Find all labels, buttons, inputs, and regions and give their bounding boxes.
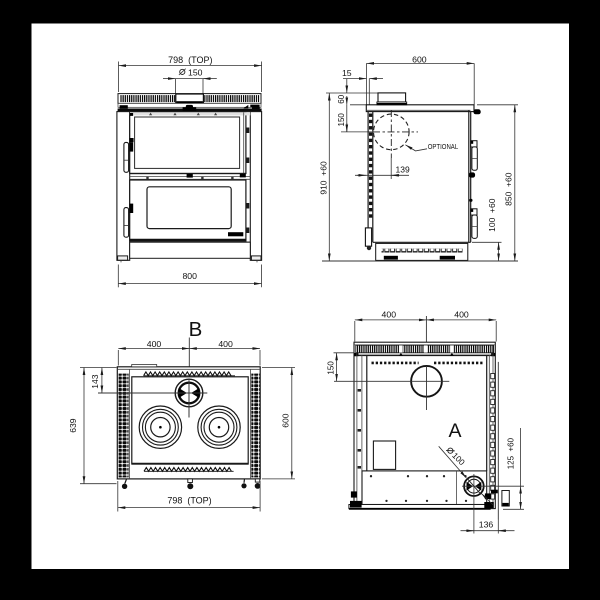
svg-text:60: 60: [337, 94, 346, 103]
svg-text:600: 600: [281, 413, 291, 427]
svg-text:400: 400: [147, 339, 162, 349]
svg-text:B: B: [189, 318, 203, 341]
svg-text:136: 136: [479, 519, 494, 529]
svg-text:139: 139: [396, 164, 410, 174]
svg-text:150: 150: [337, 113, 346, 127]
svg-text:600: 600: [412, 54, 427, 64]
svg-text:150: 150: [188, 67, 203, 77]
svg-text:100 +60: 100 +60: [487, 198, 497, 232]
svg-text:143: 143: [90, 374, 100, 388]
svg-text:150: 150: [326, 361, 335, 375]
svg-text:400: 400: [382, 309, 397, 319]
svg-text:125 +60: 125 +60: [506, 437, 515, 469]
svg-text:400: 400: [454, 309, 469, 319]
svg-text:OPTIONAL: OPTIONAL: [428, 142, 459, 151]
svg-text:A: A: [448, 420, 461, 442]
svg-text:639: 639: [68, 418, 78, 432]
svg-text:800: 800: [182, 271, 197, 281]
svg-text:798 (TOP): 798 (TOP): [167, 496, 211, 506]
svg-text:850 +60: 850 +60: [504, 172, 514, 206]
svg-text:400: 400: [218, 339, 233, 349]
svg-text:15: 15: [342, 68, 352, 78]
svg-text:910 +60: 910 +60: [318, 161, 328, 195]
svg-text:798 (TOP): 798 (TOP): [168, 55, 212, 65]
